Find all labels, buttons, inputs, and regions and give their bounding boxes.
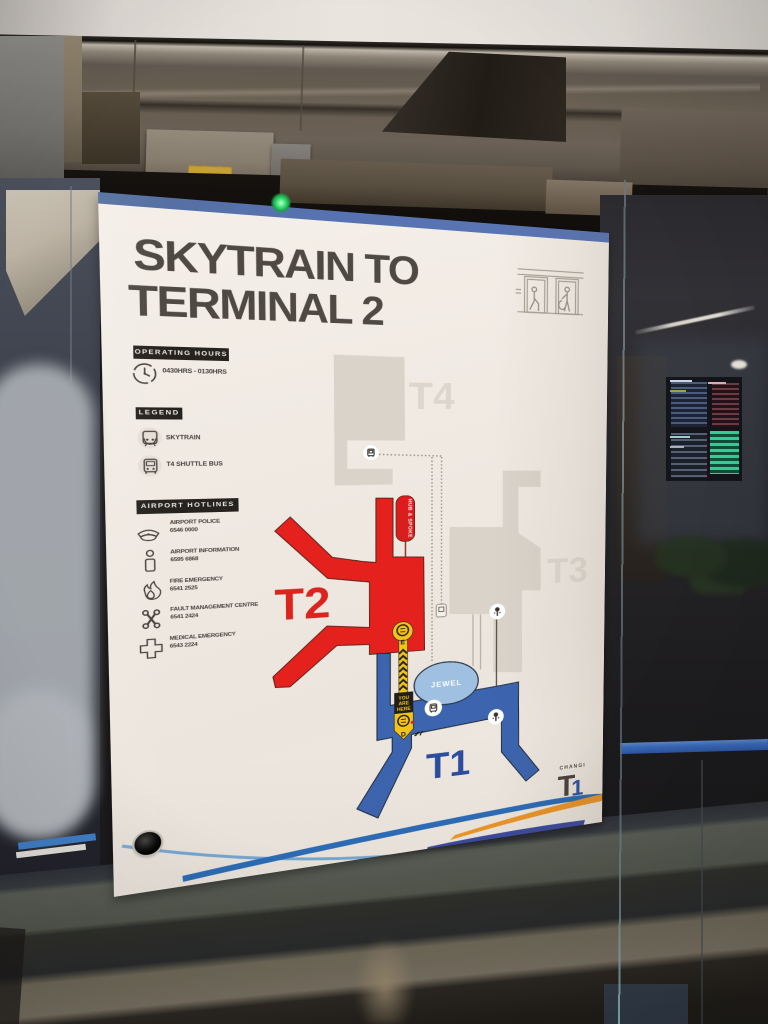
svg-text:1: 1 — [571, 775, 584, 801]
svg-text:T3: T3 — [547, 550, 588, 591]
svg-text:T1: T1 — [426, 742, 470, 787]
svg-text:T4: T4 — [409, 375, 455, 418]
svg-text:T2: T2 — [274, 578, 330, 630]
svg-text:HUB & SPOKE: HUB & SPOKE — [407, 499, 413, 538]
svg-text:D: D — [401, 730, 406, 738]
svg-text:E: E — [400, 638, 405, 646]
